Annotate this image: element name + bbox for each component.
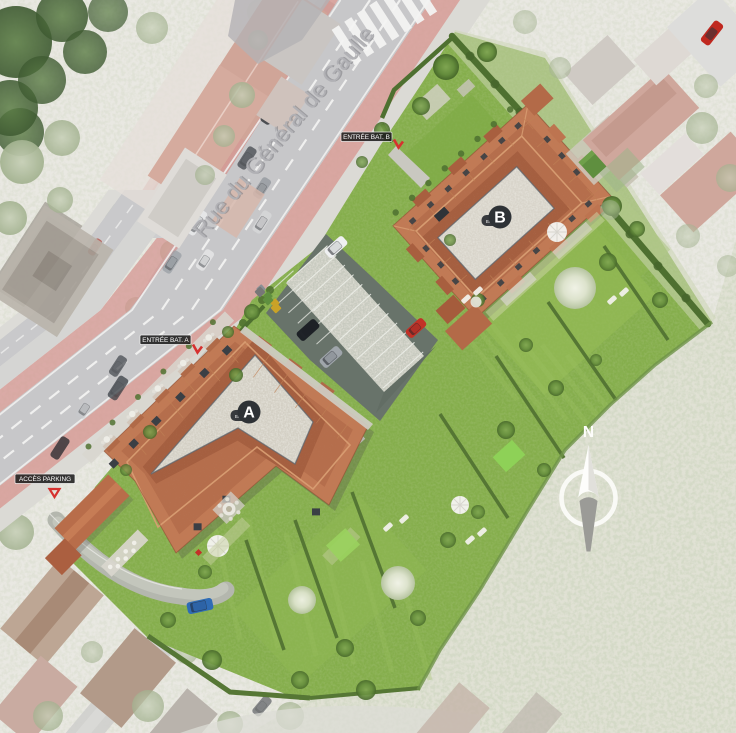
svg-text:ENTRÉE BAT. A: ENTRÉE BAT. A [142,335,189,344]
svg-text:ENTRÉE BAT. B: ENTRÉE BAT. B [343,132,390,141]
svg-text:N: N [583,424,594,441]
svg-text:B: B [494,210,506,227]
svg-text:ACCÈS PARKING: ACCÈS PARKING [19,474,71,483]
svg-text:A: A [243,405,255,422]
